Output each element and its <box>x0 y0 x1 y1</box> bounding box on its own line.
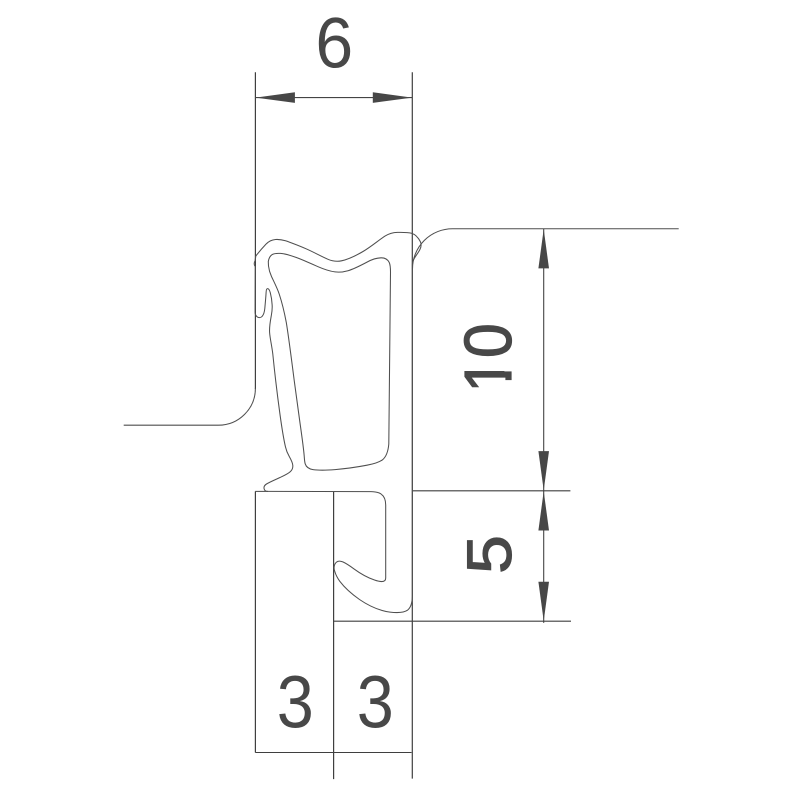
svg-text:3: 3 <box>357 660 394 743</box>
svg-text:10: 10 <box>451 323 525 393</box>
svg-text:3: 3 <box>277 660 314 743</box>
svg-text:6: 6 <box>315 3 353 83</box>
svg-text:5: 5 <box>454 535 525 574</box>
